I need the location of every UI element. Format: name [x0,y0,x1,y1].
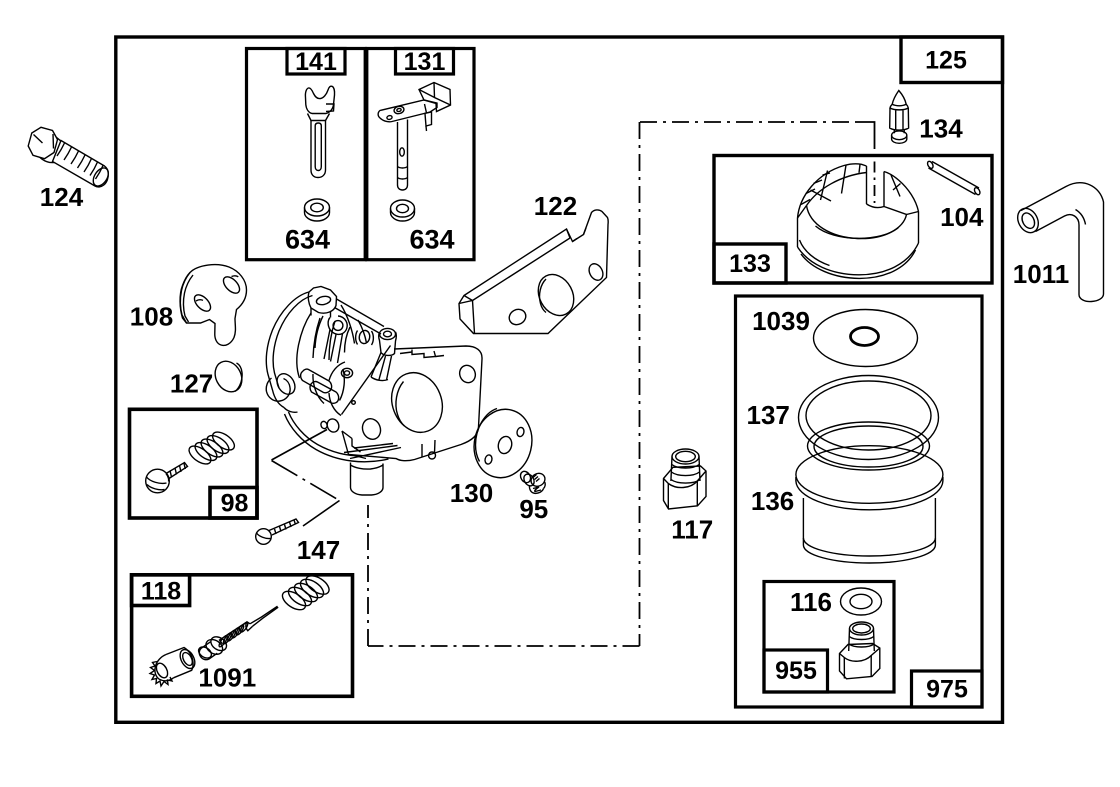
svg-text:122: 122 [534,191,577,221]
svg-text:125: 125 [925,47,967,75]
svg-text:116: 116 [790,587,832,617]
svg-text:127: 127 [170,369,213,399]
svg-text:133: 133 [729,250,771,278]
svg-text:1039: 1039 [752,306,810,336]
svg-text:147: 147 [297,535,340,565]
svg-text:131: 131 [404,48,446,76]
svg-text:1011: 1011 [1013,259,1069,289]
svg-text:117: 117 [671,515,713,545]
svg-text:137: 137 [747,400,790,430]
svg-text:118: 118 [141,578,181,606]
svg-text:95: 95 [519,494,548,524]
svg-text:108: 108 [130,301,173,331]
svg-text:136: 136 [751,486,794,516]
svg-text:955: 955 [775,657,817,685]
svg-text:134: 134 [919,113,963,143]
svg-text:1091: 1091 [198,663,256,693]
svg-text:104: 104 [940,202,984,232]
svg-text:98: 98 [221,490,249,518]
svg-text:634: 634 [285,225,330,255]
svg-text:130: 130 [450,478,493,508]
svg-text:141: 141 [295,48,337,76]
svg-text:975: 975 [926,676,968,704]
svg-text:634: 634 [409,225,454,255]
svg-text:124: 124 [40,182,84,212]
